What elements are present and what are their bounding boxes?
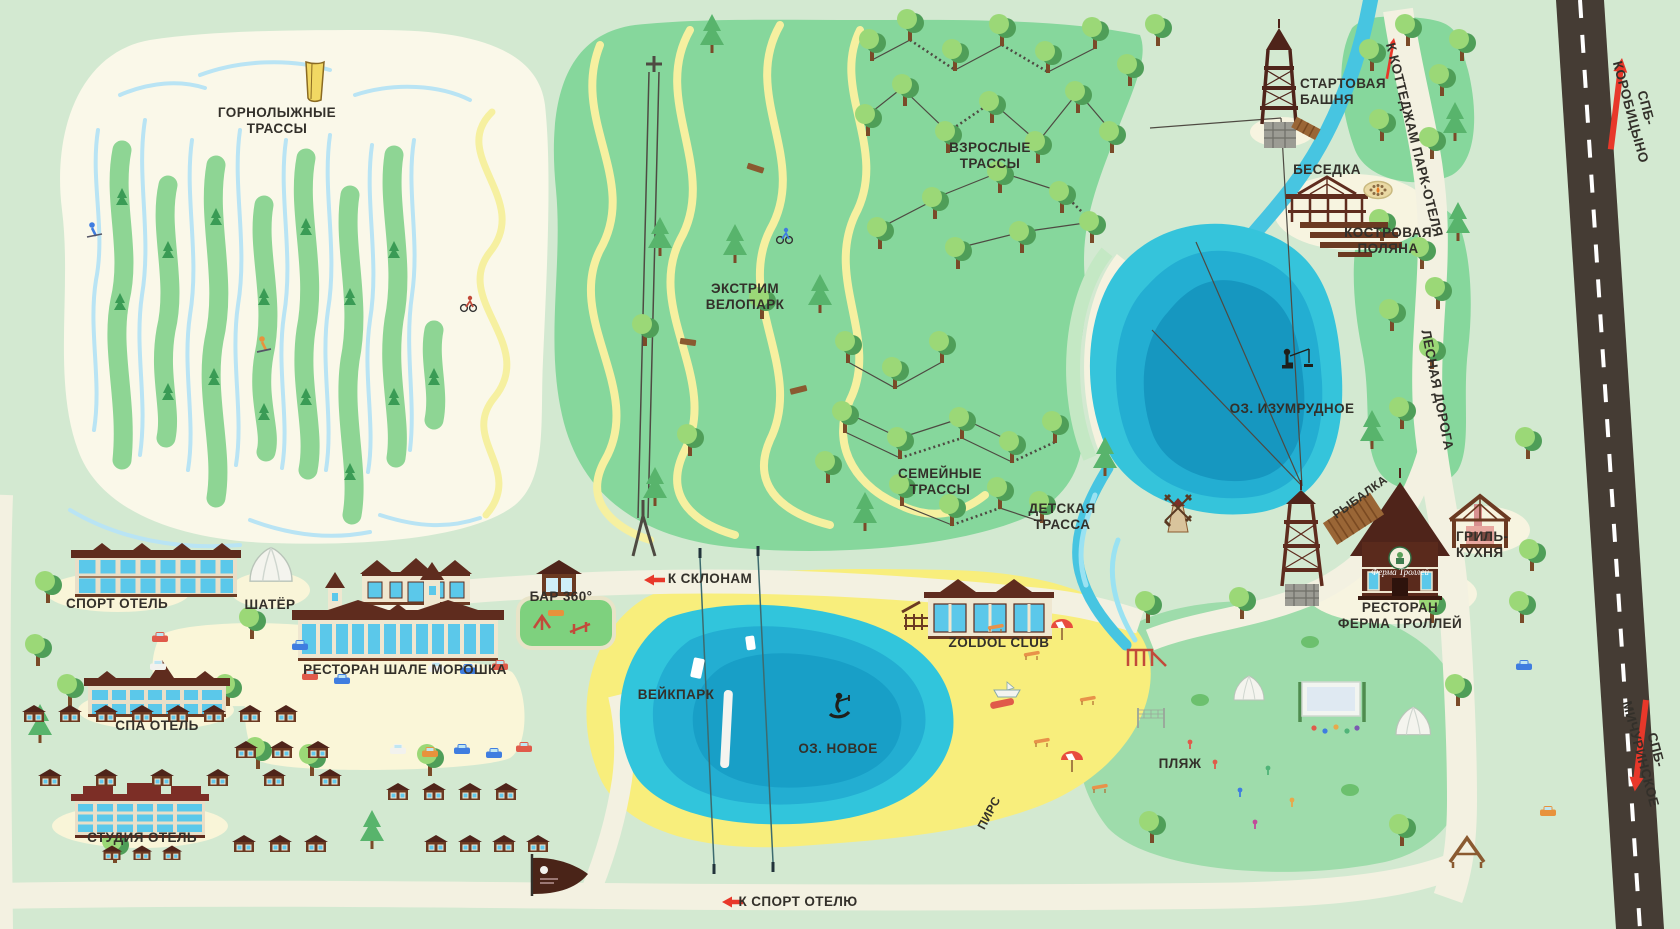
sport-hotel-building: [71, 543, 241, 597]
chalet-upper-building: [360, 558, 472, 605]
slopes-flag-icon: [306, 62, 324, 101]
campfire: [1364, 182, 1392, 199]
troll-farm-sign: Ферма Троллей: [1371, 567, 1429, 577]
map-artwork: [0, 0, 1680, 929]
studio-hotel-building: [71, 783, 209, 838]
resort-map: ГОРНОЛЫЖНЫЕ ТРАССЫ ЭКСТРИМ ВЕЛОПАРК ВЗРО…: [0, 0, 1680, 929]
left-edge-path: [4, 495, 6, 929]
playground: [518, 598, 614, 648]
